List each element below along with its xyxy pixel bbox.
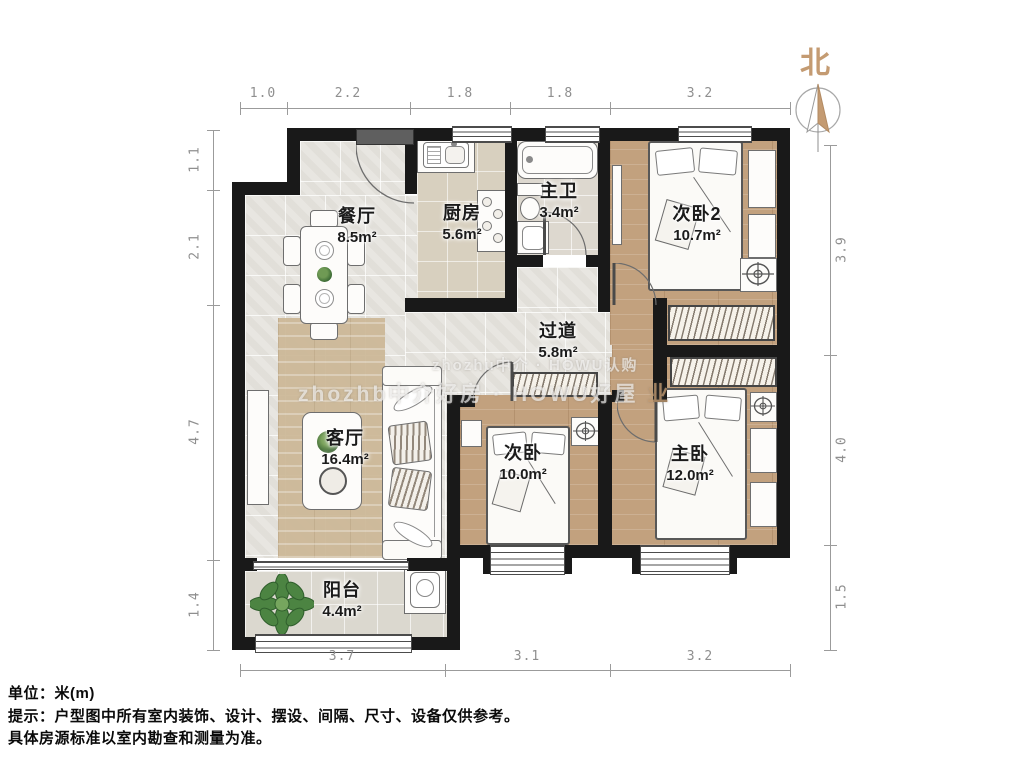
tip-note-line2: 具体房源标准以室内勘查和测量为准。 [8, 727, 272, 748]
wall [447, 558, 460, 650]
dim-label: 4.7 [188, 402, 203, 462]
room-name: 餐厅 [337, 202, 376, 228]
room-label-master: 主卧 12.0m² [666, 440, 714, 484]
room-area: 10.0m² [499, 466, 547, 483]
table-plant [317, 267, 332, 282]
room-label-balcony: 阳台 4.4m² [322, 576, 361, 620]
wall [729, 558, 737, 574]
washing-machine [404, 566, 446, 614]
room-name: 过道 [538, 317, 577, 343]
tip-note-line1: 提示：户型图中所有室内装饰、设计、摆设、间隔、尺寸、设备仅供参考。 [8, 705, 520, 726]
wall [447, 395, 460, 545]
ruler-tick [207, 190, 220, 191]
ruler-tick [790, 664, 791, 677]
room-area: 10.7m² [672, 227, 721, 244]
room-name: 阳台 [322, 576, 361, 602]
faucet-icon [526, 156, 533, 163]
master-nightstand [750, 428, 777, 473]
wall [598, 395, 612, 558]
room-name: 主卫 [539, 177, 578, 203]
wall [564, 558, 572, 574]
room-label-kitchen: 厨房 5.6m² [442, 199, 481, 243]
ruler-tick [240, 102, 241, 115]
ruler-tick [824, 650, 837, 651]
dim-label: 3.7 [312, 649, 372, 664]
bedroom2-window [678, 126, 752, 143]
bathtub [517, 141, 598, 179]
watermark: zhozhb中介好房 · HOWU好屋 业 [298, 378, 671, 408]
entry-door [356, 129, 414, 145]
bedroom2-nightstand [748, 150, 776, 208]
floor-plan-page: 餐厅 8.5m² 厨房 5.6m² 主卫 3.4m² 次卧2 10.7m² 过道… [0, 0, 1024, 768]
bathroom-window [545, 126, 600, 143]
tv-cabinet [247, 390, 269, 505]
room-area: 12.0m² [666, 467, 714, 484]
balcony-plant [250, 574, 314, 634]
master-nightstand [750, 482, 777, 527]
ruler-tick [610, 102, 611, 115]
bedroom-bay-window [490, 545, 565, 575]
room-label-bedroom2: 次卧2 10.7m² [672, 200, 721, 244]
bedroom2-ac-unit [740, 258, 777, 292]
wall [232, 182, 245, 650]
sofa-cushion [387, 420, 432, 465]
wall [505, 128, 517, 298]
room-area: 16.4m² [321, 451, 369, 468]
room-name: 次卧 [499, 439, 547, 465]
watermark-logo: 业 [647, 383, 671, 406]
room-name: 次卧2 [672, 200, 721, 226]
master-door [617, 402, 659, 444]
room-name: 客厅 [321, 424, 369, 450]
bedroom2-wardrobe [668, 305, 775, 341]
room-area: 5.6m² [442, 226, 481, 243]
ruler-tick [610, 664, 611, 677]
ruler-tick [445, 664, 446, 677]
dim-label: 3.9 [835, 220, 850, 280]
wall [505, 255, 543, 267]
dining-chair [310, 322, 338, 340]
bedroom-ac-unit [571, 417, 601, 446]
dining-chair [283, 284, 301, 314]
wall [598, 128, 610, 312]
wall [405, 298, 517, 312]
ruler-line [830, 145, 831, 650]
dining-chair [283, 236, 301, 266]
ruler-tick [207, 305, 220, 306]
dim-label: 3.1 [497, 649, 557, 664]
dim-label: 1.8 [430, 86, 490, 101]
ruler-tick [510, 102, 511, 115]
dim-label: 4.0 [835, 420, 850, 480]
dim-label: 3.2 [670, 649, 730, 664]
compass-icon [789, 82, 847, 152]
kitchen-window [452, 126, 512, 143]
ruler-tick [410, 102, 411, 115]
room-name: 主卧 [666, 440, 714, 466]
ruler-tick [207, 650, 220, 651]
dim-label: 2.1 [188, 217, 203, 277]
bedroom2-door [612, 263, 658, 307]
sofa-cushion [388, 467, 433, 512]
dim-label: 1.4 [188, 575, 203, 635]
ruler-tick [240, 664, 241, 677]
bedroom2-nightstand [748, 214, 776, 258]
bedroom2-mirror-shelf [612, 165, 622, 245]
ruler-tick [207, 560, 220, 561]
wall [407, 558, 460, 571]
wall [586, 255, 610, 267]
master-ac-unit [750, 392, 777, 422]
ruler-line [213, 130, 214, 650]
entry-door-swing [356, 145, 416, 205]
dim-label: 2.2 [318, 86, 378, 101]
room-name: 厨房 [442, 199, 481, 225]
wall [632, 558, 640, 574]
ruler-tick [287, 102, 288, 115]
ruler-line [240, 670, 790, 671]
dim-label: 3.2 [670, 86, 730, 101]
balcony-sliding-door [253, 561, 409, 570]
watermark-text: zhozhb中介好房 · HOWU好屋 [298, 383, 638, 406]
ruler-tick [824, 545, 837, 546]
room-area: 8.5m² [337, 229, 376, 246]
dim-label: 1.8 [530, 86, 590, 101]
watermark: zhozhu中介 · HOWU认购 [432, 354, 638, 375]
room-label-living: 客厅 16.4m² [321, 424, 369, 468]
master-wardrobe [670, 357, 777, 387]
room-label-bedroom: 次卧 10.0m² [499, 439, 547, 483]
bedroom-nightstand [461, 420, 482, 447]
dining-chair [347, 284, 365, 314]
ruler-tick [207, 130, 220, 131]
unit-note: 单位：米(m) [8, 682, 95, 703]
watermark-text: zhozhu中介 · HOWU认购 [432, 357, 638, 374]
room-label-dining: 餐厅 8.5m² [337, 202, 376, 246]
ruler-line [240, 108, 790, 109]
dim-label: 1.0 [233, 86, 293, 101]
north-label: 北 [800, 38, 830, 82]
wall [653, 345, 790, 357]
room-area: 4.4m² [322, 603, 361, 620]
dim-label: 1.5 [835, 567, 850, 627]
master-bay-window [640, 545, 730, 575]
wall [777, 128, 790, 558]
ruler-tick [824, 355, 837, 356]
dim-label: 1.1 [188, 130, 203, 190]
wall [447, 545, 490, 558]
room-area: 3.4m² [539, 204, 578, 221]
room-label-bathroom: 主卫 3.4m² [539, 177, 578, 221]
